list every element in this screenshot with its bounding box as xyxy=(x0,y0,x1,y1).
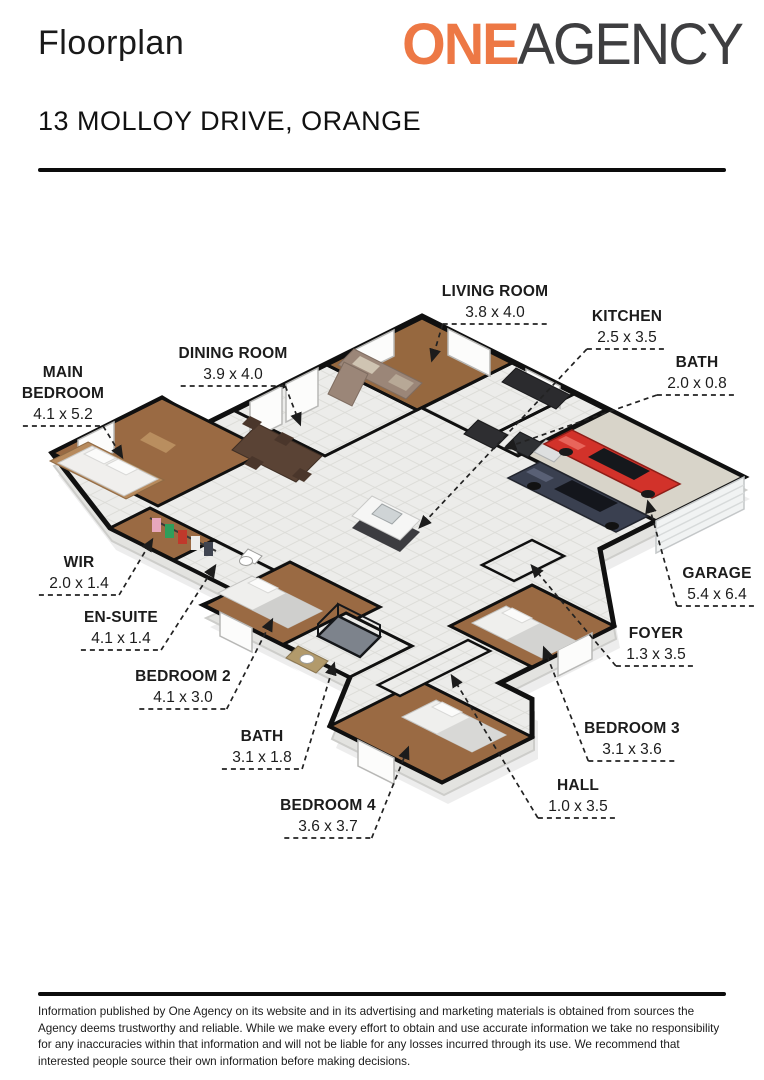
disclaimer-text: Information published by One Agency on i… xyxy=(38,1004,730,1071)
room-label-bath: BATH3.1 x 1.8 xyxy=(222,664,334,769)
room-label-text: BEDROOM 24.1 x 3.0 xyxy=(135,668,231,706)
room-label-text: BEDROOM 33.1 x 3.6 xyxy=(584,720,680,758)
room-label-text: KITCHEN2.5 x 3.5 xyxy=(592,308,662,346)
room-label-text: WIR2.0 x 1.4 xyxy=(49,554,109,592)
room-label-text: BATH2.0 x 0.8 xyxy=(667,354,726,392)
floorplan-page: { "header": { "title": "Floorplan", "log… xyxy=(0,0,764,1080)
room-label-text: BATH3.1 x 1.8 xyxy=(232,728,291,766)
room-label-text: BEDROOM 43.6 x 3.7 xyxy=(280,797,376,835)
room-label-text: HALL1.0 x 3.5 xyxy=(548,777,607,815)
room-label-text: GARAGE5.4 x 6.4 xyxy=(682,565,751,603)
room-label-text: DINING ROOM3.9 x 4.0 xyxy=(179,345,288,383)
room-label-text: LIVING ROOM3.8 x 4.0 xyxy=(442,283,548,321)
room-label-text: EN-SUITE4.1 x 1.4 xyxy=(84,609,158,647)
bottom-divider xyxy=(38,992,726,996)
room-label-text: MAINBEDROOM4.1 x 5.2 xyxy=(22,364,104,423)
room-label-text: FOYER1.3 x 3.5 xyxy=(626,625,685,663)
floorplan-3d-render: LIVING ROOM3.8 x 4.0KITCHEN2.5 x 3.5BATH… xyxy=(0,0,764,1080)
